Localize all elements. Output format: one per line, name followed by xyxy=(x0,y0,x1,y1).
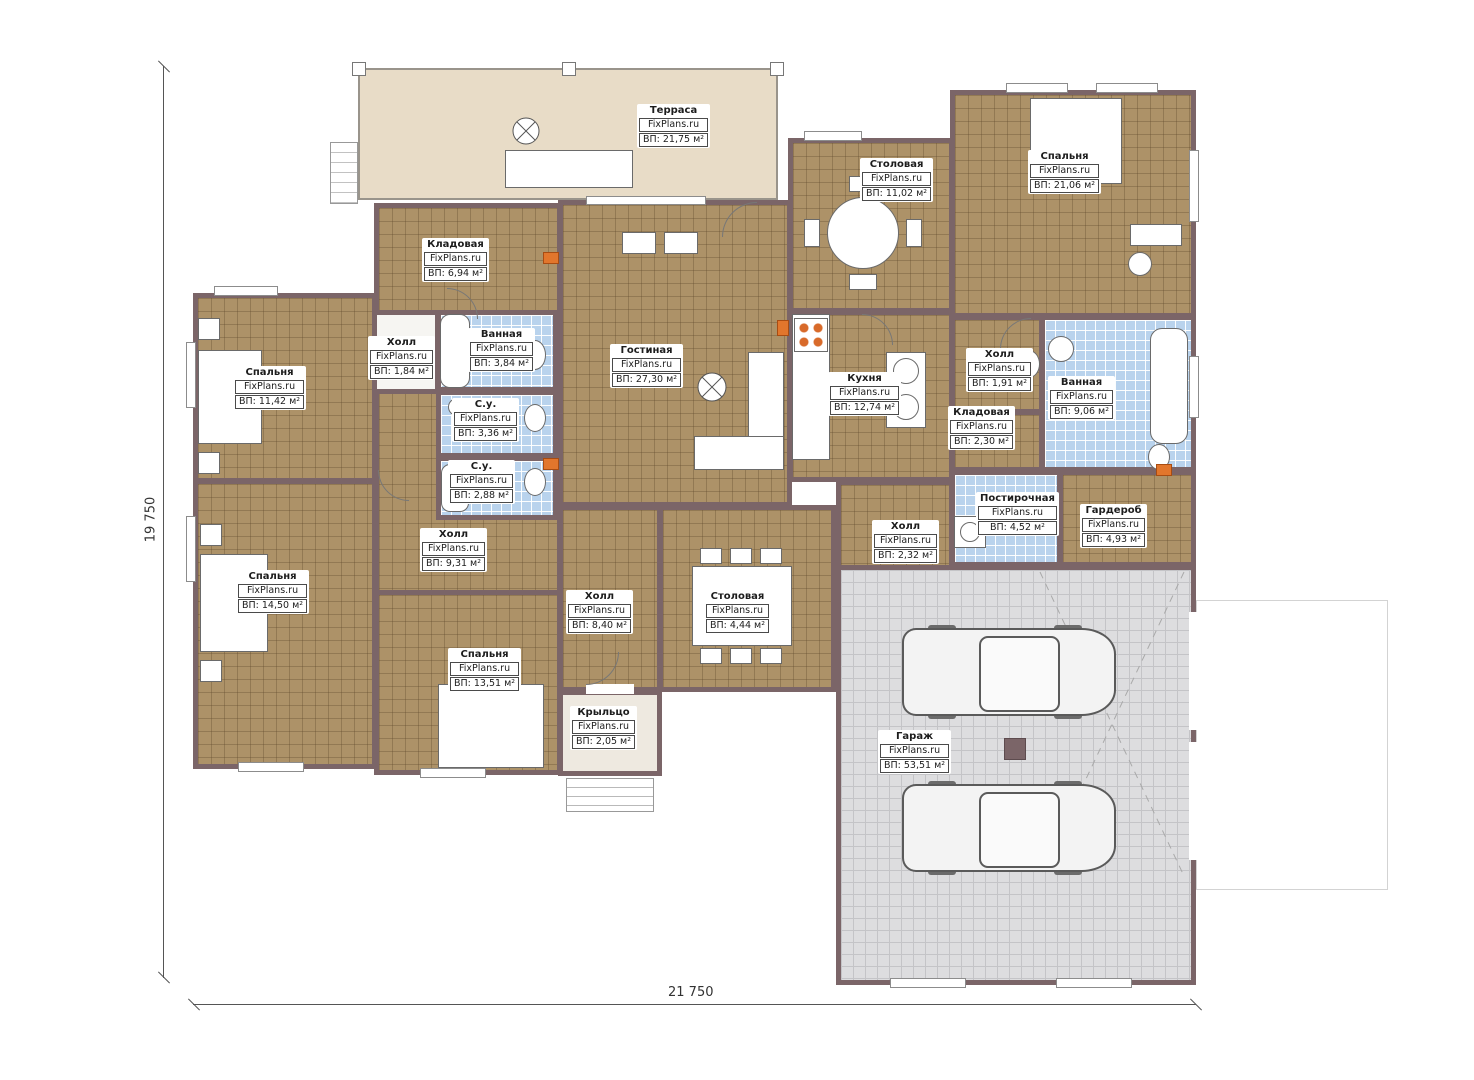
watermark: FixPlans.ru xyxy=(422,542,485,556)
watermark: FixPlans.ru xyxy=(424,252,487,266)
dimension-label-width: 21 750 xyxy=(668,985,714,1000)
room-area: ВП: 13,51 м² xyxy=(450,677,519,691)
room-name: Ванная xyxy=(470,329,533,341)
room-label-pantry-top: Кладовая FixPlans.ru ВП: 6,94 м² xyxy=(422,238,489,282)
room-label-kitchen: Кухня FixPlans.ru ВП: 12,74 м² xyxy=(828,372,901,416)
window xyxy=(420,768,486,778)
dimension-tick xyxy=(158,971,170,983)
room-area: ВП: 2,05 м² xyxy=(572,735,635,749)
room-label-hall-184: Холл FixPlans.ru ВП: 1,84 м² xyxy=(368,336,435,380)
window xyxy=(586,196,706,205)
watermark: FixPlans.ru xyxy=(450,662,519,676)
room-label-wardrobe: Гардероб FixPlans.ru ВП: 4,93 м² xyxy=(1080,504,1147,548)
room-area: ВП: 11,42 м² xyxy=(235,395,304,409)
watermark: FixPlans.ru xyxy=(1050,390,1113,404)
room-name: Спальня xyxy=(1030,151,1099,163)
nightstand-icon xyxy=(198,318,220,340)
ceiling-fan-icon xyxy=(696,371,728,403)
room-name: Холл xyxy=(568,591,631,603)
watermark: FixPlans.ru xyxy=(978,506,1057,520)
chair-icon xyxy=(700,648,722,664)
garage-door-opening xyxy=(1189,612,1201,730)
dimension-label-height: 19 750 xyxy=(143,497,158,543)
car-icon xyxy=(902,628,1116,716)
room-name: Крыльцо xyxy=(572,707,635,719)
driveway-pad xyxy=(1196,600,1388,890)
room-name: Холл xyxy=(968,349,1031,361)
window xyxy=(186,342,196,408)
radiator-marker xyxy=(1156,464,1172,476)
sofa-icon xyxy=(694,436,784,470)
watermark: FixPlans.ru xyxy=(862,172,931,186)
car-icon xyxy=(902,784,1116,872)
room-area: ВП: 3,84 м² xyxy=(470,357,533,371)
room-area: ВП: 9,06 м² xyxy=(1050,405,1113,419)
chair-icon xyxy=(849,274,877,290)
window xyxy=(1189,356,1199,418)
car-cabin xyxy=(979,792,1060,868)
room-label-bedroom-13: Спальня FixPlans.ru ВП: 13,51 м² xyxy=(448,648,521,692)
radiator-marker xyxy=(543,252,559,264)
desk-icon xyxy=(1130,224,1182,246)
nightstand-icon xyxy=(200,524,222,546)
garage-column xyxy=(1004,738,1026,760)
room-name: С.у. xyxy=(450,461,513,473)
window xyxy=(214,286,278,296)
room-area: ВП: 14,50 м² xyxy=(238,599,307,613)
watermark: FixPlans.ru xyxy=(1082,518,1145,532)
room-name: Гостиная xyxy=(612,345,681,357)
window xyxy=(1056,978,1132,988)
room-label-laundry: Постирочная FixPlans.ru ВП: 4,52 м² xyxy=(976,492,1059,536)
room-label-wc-288: С.у. FixPlans.ru ВП: 2,88 м² xyxy=(448,460,515,504)
room-area: ВП: 4,52 м² xyxy=(978,521,1057,535)
watermark: FixPlans.ru xyxy=(968,362,1031,376)
room-label-hall-191: Холл FixPlans.ru ВП: 1,91 м² xyxy=(966,348,1033,392)
watermark: FixPlans.ru xyxy=(1030,164,1099,178)
room-area: ВП: 21,06 м² xyxy=(1030,179,1099,193)
room-name: Постирочная xyxy=(978,493,1057,505)
room-label-bedroom-l2: Спальня FixPlans.ru ВП: 14,50 м² xyxy=(236,570,309,614)
stove-icon xyxy=(794,318,828,352)
room-area: ВП: 21,75 м² xyxy=(639,133,708,147)
washbasin-icon xyxy=(1048,336,1074,362)
chair-icon xyxy=(1128,252,1152,276)
watermark: FixPlans.ru xyxy=(572,720,635,734)
terrace-post xyxy=(770,62,784,76)
room-name: С.у. xyxy=(454,399,517,411)
watermark: FixPlans.ru xyxy=(370,350,433,364)
tv-cabinet-icon xyxy=(622,232,656,254)
window xyxy=(238,762,304,772)
porch-steps xyxy=(566,778,654,812)
room-area: ВП: 12,74 м² xyxy=(830,401,899,415)
chair-icon xyxy=(730,548,752,564)
room-name: Спальня xyxy=(450,649,519,661)
room-label-hall-840: Холл FixPlans.ru ВП: 8,40 м² xyxy=(566,590,633,634)
dimension-tick xyxy=(158,60,170,72)
watermark: FixPlans.ru xyxy=(950,420,1013,434)
watermark: FixPlans.ru xyxy=(874,534,937,548)
room-area: ВП: 4,93 м² xyxy=(1082,533,1145,547)
room-label-pantry-230: Кладовая FixPlans.ru ВП: 2,30 м² xyxy=(948,406,1015,450)
terrace-post xyxy=(562,62,576,76)
room-area: ВП: 9,31 м² xyxy=(422,557,485,571)
radiator-marker xyxy=(777,320,789,336)
room-name: Холл xyxy=(874,521,937,533)
room-label-hall-931: Холл FixPlans.ru ВП: 9,31 м² xyxy=(420,528,487,572)
chair-icon xyxy=(760,548,782,564)
room-name: Холл xyxy=(422,529,485,541)
room-label-bath-906: Ванная FixPlans.ru ВП: 9,06 м² xyxy=(1048,376,1115,420)
terrace-post xyxy=(352,62,366,76)
room-name: Ванная xyxy=(1050,377,1113,389)
window xyxy=(1006,83,1068,93)
room-area: ВП: 11,02 м² xyxy=(862,187,931,201)
dimension-line-vertical xyxy=(163,66,164,978)
room-area: ВП: 6,94 м² xyxy=(424,267,487,281)
round-table-icon xyxy=(827,197,899,269)
room-area: ВП: 1,84 м² xyxy=(370,365,433,379)
garage-door-opening xyxy=(1189,742,1201,860)
room-name: Терраса xyxy=(639,105,708,117)
room-label-wc-336: С.у. FixPlans.ru ВП: 3,36 м² xyxy=(452,398,519,442)
watermark: FixPlans.ru xyxy=(639,118,708,132)
room-label-terrace: Терраса FixPlans.ru ВП: 21,75 м² xyxy=(637,104,710,148)
watermark: FixPlans.ru xyxy=(450,474,513,488)
room-area: ВП: 8,40 м² xyxy=(568,619,631,633)
room-name: Столовая xyxy=(706,591,769,603)
chair-icon xyxy=(804,219,820,247)
room-name: Кладовая xyxy=(424,239,487,251)
ceiling-fan-icon xyxy=(511,116,541,146)
watermark: FixPlans.ru xyxy=(235,380,304,394)
watermark: FixPlans.ru xyxy=(568,604,631,618)
room-label-dining-444: Столовая FixPlans.ru ВП: 4,44 м² xyxy=(704,590,771,634)
room-area: ВП: 4,44 м² xyxy=(706,619,769,633)
room-name: Гараж xyxy=(880,731,949,743)
room-label-porch: Крыльцо FixPlans.ru ВП: 2,05 м² xyxy=(570,706,637,750)
watermark: FixPlans.ru xyxy=(706,604,769,618)
room-label-living: Гостиная FixPlans.ru ВП: 27,30 м² xyxy=(610,344,683,388)
window xyxy=(186,516,196,582)
room-name: Столовая xyxy=(862,159,931,171)
watermark: FixPlans.ru xyxy=(238,584,307,598)
chair-icon xyxy=(906,219,922,247)
terrace-sofa-icon xyxy=(505,150,633,188)
toilet-icon xyxy=(524,404,546,432)
window xyxy=(1096,83,1158,93)
chair-icon xyxy=(760,648,782,664)
room-label-garage: Гараж FixPlans.ru ВП: 53,51 м² xyxy=(878,730,951,774)
room-name: Кухня xyxy=(830,373,899,385)
nightstand-icon xyxy=(200,660,222,682)
bathtub-icon xyxy=(440,314,470,388)
room-area: ВП: 2,88 м² xyxy=(450,489,513,503)
room-label-hall-232: Холл FixPlans.ru ВП: 2,32 м² xyxy=(872,520,939,564)
toilet-icon xyxy=(524,468,546,496)
room-name: Гардероб xyxy=(1082,505,1145,517)
watermark: FixPlans.ru xyxy=(612,358,681,372)
porch-door-opening xyxy=(586,684,634,694)
room-area: ВП: 27,30 м² xyxy=(612,373,681,387)
terrace-side-steps xyxy=(330,142,358,204)
room-area: ВП: 3,36 м² xyxy=(454,427,517,441)
watermark: FixPlans.ru xyxy=(830,386,899,400)
window xyxy=(804,131,862,141)
room-name: Кладовая xyxy=(950,407,1013,419)
room-area: ВП: 2,30 м² xyxy=(950,435,1013,449)
room-label-bedroom-tr: Спальня FixPlans.ru ВП: 21,06 м² xyxy=(1028,150,1101,194)
car-cabin xyxy=(979,636,1060,712)
watermark: FixPlans.ru xyxy=(880,744,949,758)
nightstand-icon xyxy=(198,452,220,474)
room-area: ВП: 1,91 м² xyxy=(968,377,1031,391)
room-label-dining-top: Столовая FixPlans.ru ВП: 11,02 м² xyxy=(860,158,933,202)
room-name: Холл xyxy=(370,337,433,349)
room-label-bedroom-l1: Спальня FixPlans.ru ВП: 11,42 м² xyxy=(233,366,306,410)
room-name: Спальня xyxy=(238,571,307,583)
bed-icon xyxy=(438,684,544,768)
window xyxy=(1189,150,1199,222)
chair-icon xyxy=(700,548,722,564)
floor-plan-canvas: Терраса FixPlans.ru ВП: 21,75 м² Спальня… xyxy=(0,0,1474,1080)
window xyxy=(890,978,966,988)
dimension-line-horizontal xyxy=(193,1004,1196,1005)
watermark: FixPlans.ru xyxy=(470,342,533,356)
room-label-bath-384: Ванная FixPlans.ru ВП: 3,84 м² xyxy=(468,328,535,372)
room-name: Спальня xyxy=(235,367,304,379)
chair-icon xyxy=(730,648,752,664)
tv-cabinet-icon xyxy=(664,232,698,254)
room-area: ВП: 2,32 м² xyxy=(874,549,937,563)
room-area: ВП: 53,51 м² xyxy=(880,759,949,773)
radiator-marker xyxy=(543,458,559,470)
watermark: FixPlans.ru xyxy=(454,412,517,426)
bathtub-icon xyxy=(1150,328,1188,444)
